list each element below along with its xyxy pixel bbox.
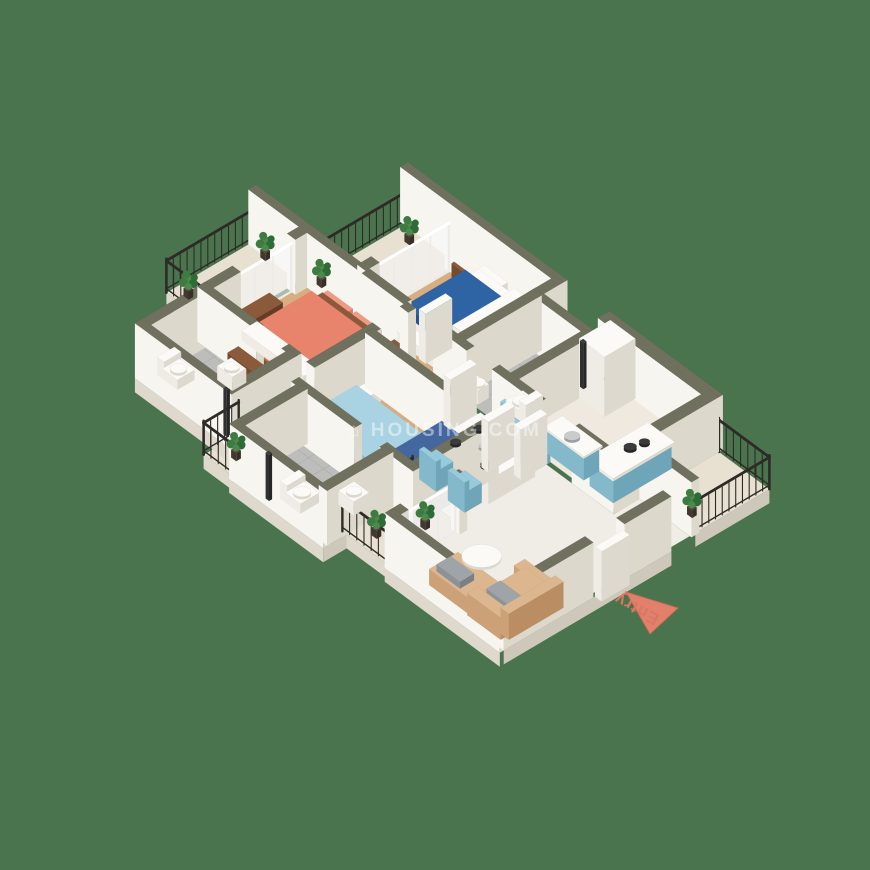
bathroom2-shower-pole (580, 339, 587, 389)
bathroom3-toilet-seat (293, 486, 311, 499)
kitchen-sink-basin (564, 431, 580, 443)
bathroom1-shower-pole (223, 386, 230, 436)
dinner-plate (450, 439, 461, 448)
bathroom1-toilet-seat (170, 363, 187, 375)
cooking-pan (639, 438, 650, 447)
bathroom3-shower-pole (266, 451, 273, 501)
coffee-table (462, 544, 502, 570)
kitchen-fridge (579, 320, 635, 417)
bathroom3-sink-basin (346, 486, 362, 498)
floorplan-scene (0, 0, 870, 870)
cooking-pan (624, 443, 637, 453)
bathroom1-sink-basin (224, 362, 240, 374)
floorplan-3d-render: ⌂ HOUSING.COM Entry (0, 0, 870, 870)
